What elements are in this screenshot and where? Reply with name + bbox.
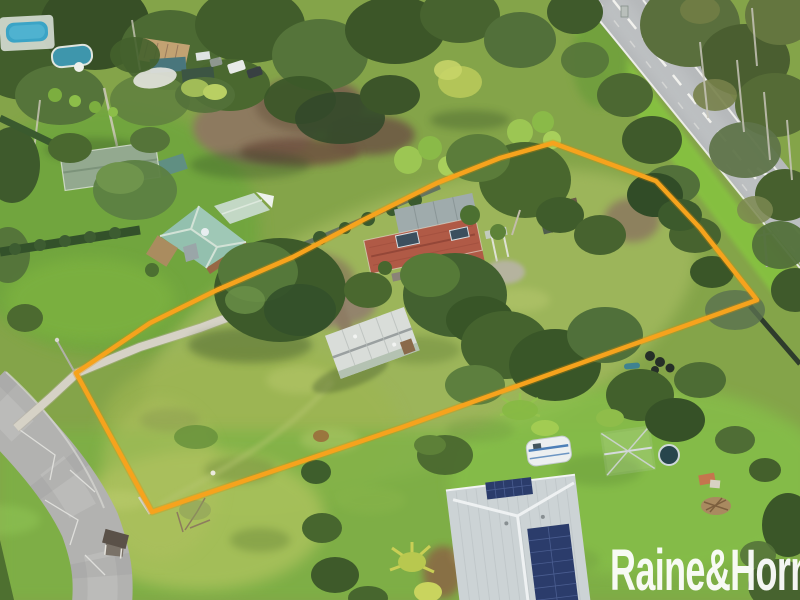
- swimming-pool-1: [0, 15, 55, 52]
- solar-house: [446, 472, 592, 600]
- road-sign: [621, 6, 628, 17]
- roof-vent: [201, 228, 209, 236]
- carport-frame: [601, 427, 654, 475]
- white-ball: [211, 471, 216, 476]
- swimming-pool-2: [51, 44, 93, 68]
- rusty-shrub: [313, 430, 329, 442]
- round-pool: [659, 445, 679, 465]
- caravan: [525, 435, 572, 467]
- aerial-photo: Raine&Horne: [0, 0, 800, 600]
- aerial-photo-canvas: Raine&Horne: [0, 0, 800, 600]
- umbrella: [74, 62, 84, 72]
- watermark-logo: Raine&Horne: [610, 538, 800, 600]
